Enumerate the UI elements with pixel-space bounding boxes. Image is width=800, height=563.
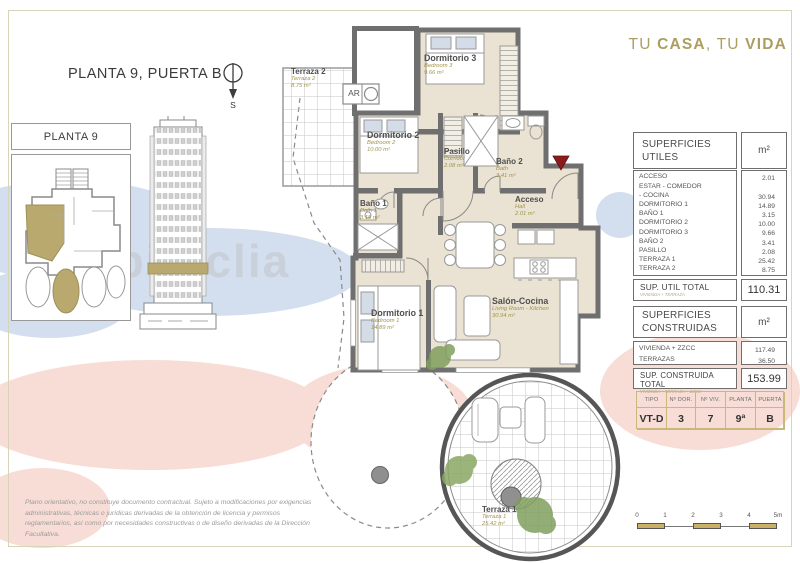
room-label-bano1: Baño 1 Bath 1 3.15 m² [360, 199, 387, 222]
tipo-value: 7 [696, 408, 726, 430]
scale-tick: 3 [719, 512, 723, 519]
compass-icon [220, 56, 246, 100]
table-row: DORMITORIO 114.89 [633, 201, 787, 210]
table-row: DORMITORIO 210.00 [633, 219, 787, 228]
room-label-dormitorio1: Dormitorio 1 Bedroom 1 14.89 m² [371, 308, 423, 332]
tipo-header: TIPO [637, 392, 667, 408]
page-title: PLANTA 9, PUERTA B [68, 66, 222, 82]
tipo-header: Nº DOR. [667, 392, 696, 408]
room-label-terraza2: Terraza 2 Terraza 2 8.75 m² [291, 67, 326, 90]
tipo-table: TIPO Nº DOR. Nº VIV. PLANTA PUERTA VT-D … [636, 391, 784, 429]
tipo-header: Nº VIV. [696, 392, 726, 408]
room-label-terraza1: Terraza 1 Terraza 1 25.42 m² [482, 505, 517, 528]
scale-tick: 2 [691, 512, 695, 519]
compass-south-label: S [230, 100, 236, 110]
building-elevation [138, 114, 218, 334]
terrace-armchair [472, 398, 498, 442]
tipo-value: 9ª [726, 408, 756, 430]
brand-vida: VIDA [745, 36, 787, 53]
utiles-total-value: 110.31 [741, 279, 787, 301]
key-plan-box [11, 154, 131, 321]
construidas-total-value: 153.99 [741, 368, 787, 389]
construidas-title-box: SUPERFICIES CONSTRUIDAS [633, 306, 737, 338]
key-plan-drawing [12, 155, 130, 320]
floor-plan [278, 18, 623, 563]
utiles-rows: ACCESO2.01 ESTAR - COMEDOR - COCINA30.94… [633, 170, 787, 276]
table-row: BAÑO 23.41 [633, 237, 787, 246]
table-row: DORMITORIO 39.66 [633, 228, 787, 237]
construidas-rows: VIVIENDA + ZZCC117.49 TERRAZAS36.50 [633, 341, 787, 365]
room-label-bano2: Baño 2 Bath 3.41 m² [496, 157, 523, 180]
tipo-value: B [756, 408, 785, 430]
table-row: TERRAZAS36.50 [633, 354, 787, 365]
brand-casa: CASA [657, 36, 706, 53]
scale-tick: 4 [747, 512, 751, 519]
scale-segment [749, 523, 777, 529]
scale-tick: 1 [663, 512, 667, 519]
key-plan-title-box: PLANTA 9 [11, 123, 131, 150]
brand-comma: , [706, 36, 717, 53]
table-row: ESTAR - COMEDOR - COCINA30.94 [633, 182, 787, 200]
table-row: BAÑO 13.15 [633, 210, 787, 219]
room-label-pasillo: Pasillo Corridor 2.08 m² [444, 147, 470, 170]
tipo-value: 3 [667, 408, 696, 430]
scale-bar: 0 1 2 3 4 5m [637, 512, 777, 534]
room-label-acceso: Acceso Hall 2.01 m² [515, 195, 543, 218]
brand-logo: TU CASA, TU VIDA [605, 36, 787, 54]
table-row: VIVIENDA + ZZCC117.49 [633, 343, 787, 354]
construidas-unit-box: m² [741, 306, 787, 338]
brand-tu1: TU [629, 36, 658, 53]
scale-tick: 0 [635, 512, 639, 519]
utiles-title-box: SUPERFICIES UTILES [633, 132, 737, 169]
neighbour-terrace-oval [311, 356, 465, 528]
tipo-header: PUERTA [756, 392, 785, 408]
ar-label: AR [344, 88, 364, 98]
room-label-dormitorio2: Dormitorio 2 Bedroom 2 10.00 m² [367, 130, 419, 154]
room-label-salon-cocina: Salón-Cocina Living Room - Kitchen 30.94… [492, 296, 549, 320]
table-row: TERRAZA 125.42 [633, 256, 787, 265]
tipo-header: PLANTA [726, 392, 756, 408]
scale-segment [693, 523, 721, 529]
tipo-value: VT-D [637, 408, 667, 430]
table-row: TERRAZA 28.75 [633, 265, 787, 274]
room-label-dormitorio3: Dormitorio 3 Bedroom 3 9.66 m² [424, 53, 476, 77]
terrace-armchair [525, 397, 545, 443]
scale-tick: 5m [774, 512, 783, 519]
terraza-1-area [442, 375, 618, 559]
utiles-total-box: SUP. UTIL TOTAL VIVIENDA + TERRAZA [633, 279, 737, 301]
scale-segment [637, 523, 665, 529]
utiles-unit-box: m² [741, 132, 787, 169]
brand-tu2: TU [717, 36, 746, 53]
construidas-total-box: SUP. CONSTRUIDA TOTAL VIVIENDA + TERRAZA… [633, 368, 737, 389]
terrace-side-table [500, 407, 521, 428]
table-row: ACCESO2.01 [633, 173, 787, 182]
table-row: PASILLO2.08 [633, 247, 787, 256]
disclaimer-text: Plano orientativo, no constituye documen… [25, 498, 325, 540]
